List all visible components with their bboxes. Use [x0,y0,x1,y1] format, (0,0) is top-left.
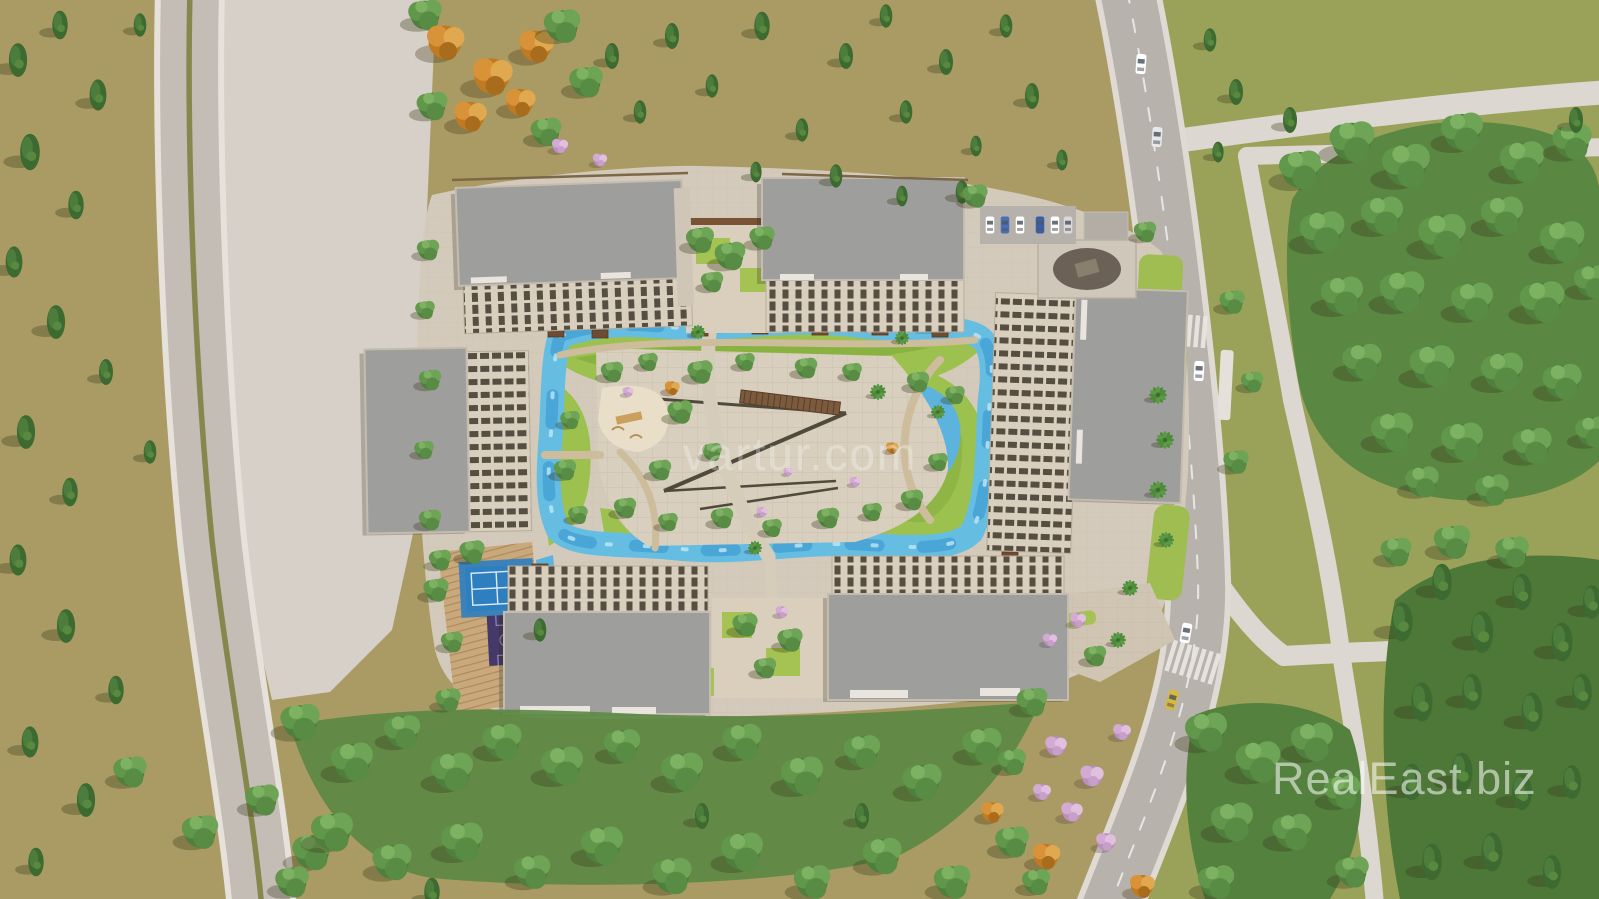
building-southwest [499,566,710,716]
building-northwest [451,180,695,334]
site-plan-render: vartur.com RealEast.biz [0,0,1599,899]
aerial-render-canvas: vartur.com RealEast.biz [0,0,1599,899]
building-north [757,178,964,332]
building-west [359,347,531,536]
parking-lot [980,206,1076,244]
building-southeast [823,556,1068,702]
watermark-center: vartur.com [683,428,918,480]
watermark-bottom-right: RealEast.biz [1272,753,1537,804]
